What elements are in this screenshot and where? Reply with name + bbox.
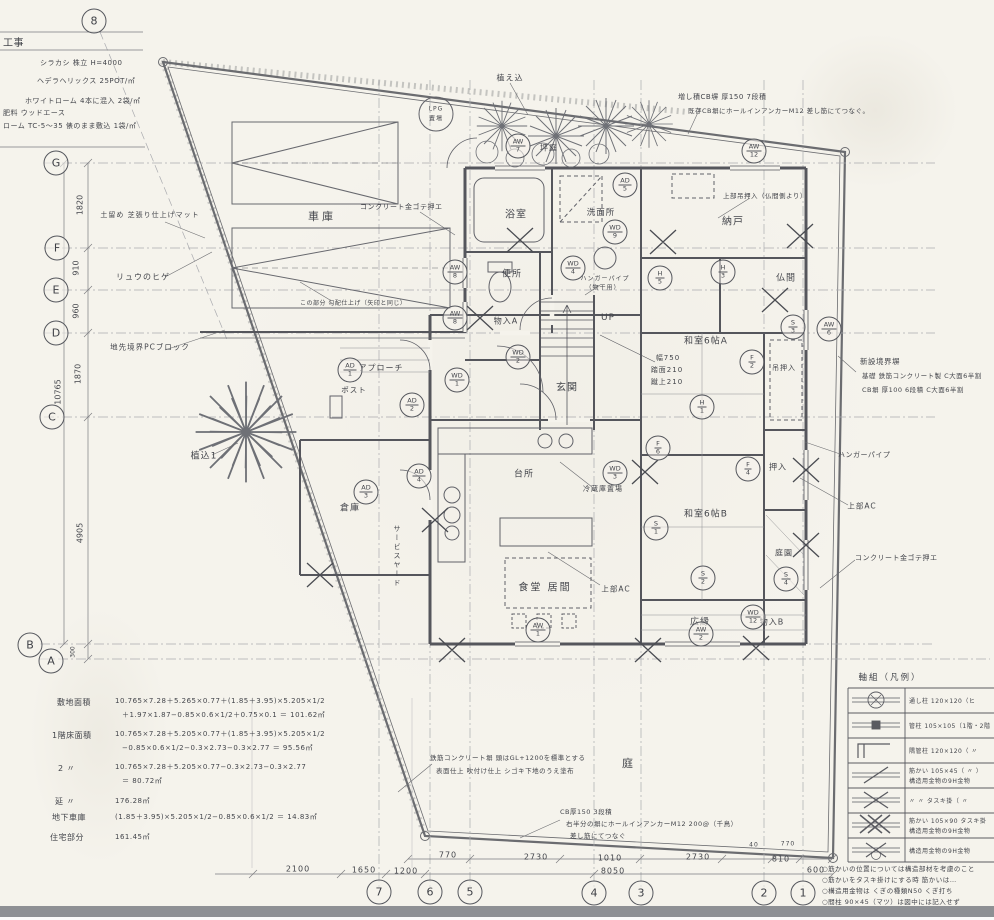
opening-symbol-wd2: WD2: [506, 345, 531, 370]
dim-left-1820: 1820: [76, 195, 85, 215]
dim-bottom-1200: 1200: [394, 867, 418, 876]
note-right-finish: コンクリート金ゴテ押エ: [855, 553, 938, 563]
opening-symbol-h5: H5: [648, 266, 673, 291]
room-label-dining: 食堂 居間: [518, 579, 571, 594]
note-add-wall-1: 増し積CB塀 厚150 7段積: [678, 92, 766, 102]
room-label-nando: 納戸: [722, 213, 744, 228]
left-notes-title: 工事: [3, 34, 24, 49]
calc-line: (1.85＋3.95)×5.205×1/2−0.85×0.6×1/2 ＝ 14.…: [115, 812, 317, 822]
legend-row-desc: 構造用金物の9H金物: [909, 826, 970, 835]
stair-note-rise: 蹴上210: [651, 377, 683, 387]
calc-label-house-area: 住宅部分: [50, 832, 84, 843]
legend-row-desc: 通し柱 120×120（ヒ: [909, 696, 975, 705]
room-label-washroom: 洗面所: [587, 206, 616, 218]
calc-line: 176.28㎡: [115, 796, 150, 806]
room-label-closet-a: 物入A: [494, 316, 518, 327]
calc-line: 10.765×7.28＋5.205×0.77−0.3×2.73−0.3×2.77: [115, 762, 306, 772]
opening-symbol-ad4: AD4: [407, 464, 432, 489]
calc-line: 10.765×7.28＋5.265×0.77＋(1.85＋3.95)×5.205…: [115, 696, 325, 706]
left-note-4: 肥料 ウッドエース: [3, 108, 65, 118]
calc-line: 10.765×7.28＋5.205×0.77＋(1.85＋3.95)×5.205…: [115, 729, 325, 739]
opening-symbol-aw8-a: AW8: [443, 260, 468, 285]
left-note-5: ローム TC-5〜35 俵のまま敷込 1袋/㎡: [3, 121, 153, 131]
grid-bubble-3: 3: [629, 881, 654, 906]
opening-symbol-aw7: AW7: [506, 134, 531, 159]
grid-bubble-B: B: [18, 633, 43, 658]
note-hanger-right: ハンガーパイプ: [838, 450, 890, 460]
dim-left-4905: 4905: [76, 523, 85, 543]
note-garage-slope: この部分 勾配仕上げ（矢印と同じ）: [300, 298, 406, 307]
opening-symbol-f6: F6: [646, 436, 671, 461]
legend-table: [848, 688, 994, 862]
grid-bubble-D: D: [44, 321, 69, 346]
stair-note-width: 幅750: [656, 353, 680, 363]
room-label-kitchen: 台所: [514, 467, 534, 480]
note-hanger-stair-1: ハンガーパイプ: [581, 274, 630, 283]
dim-bottom-8050: 8050: [601, 867, 625, 876]
room-label-niwa: 庭: [622, 755, 634, 771]
dim-bottom-40: 40: [749, 842, 759, 849]
dim-left-910: 910: [72, 260, 81, 275]
dim-left-300: 300: [70, 646, 77, 657]
grid-bubble-4: 4: [582, 881, 607, 906]
legend-row-desc: 筋かい 105×90 タスキ掛: [909, 816, 986, 825]
note-ac-2: 上部AC: [847, 501, 876, 512]
legend-row-desc: 筋かい 105×45（ 〃 ）: [909, 766, 982, 775]
room-label-tsuri-oshiire: 吊押入: [772, 363, 796, 373]
dim-bottom-1010: 1010: [598, 854, 622, 863]
floor-plan-sheet: 8 G F E D C B A 7 6 5 4 3 2 1 工事 シラカシ 株立…: [0, 0, 994, 920]
planting-label-uekomi1: 植込1: [191, 449, 218, 462]
stair-note-tread: 踏面210: [651, 365, 683, 375]
dim-left-1870: 1870: [74, 364, 83, 384]
opening-symbol-aw8-b: AW8: [443, 306, 468, 331]
room-label-teien: 庭園: [775, 548, 793, 559]
room-label-washitsu-b: 和室6帖B: [684, 507, 728, 520]
scan-edge-band: [0, 906, 994, 917]
grid-bubble-C: C: [40, 405, 65, 430]
post-label: ポスト: [341, 385, 367, 396]
opening-symbol-s3: S3: [781, 315, 806, 340]
opening-symbol-ad5: AD5: [613, 173, 638, 198]
dim-bottom-2730b: 2730: [686, 853, 710, 862]
calc-line: 161.45㎡: [115, 832, 150, 842]
note-cb150-1: CB厚150 3段積: [560, 806, 612, 816]
grid-bubble-F: F: [45, 236, 70, 261]
note-add-wall-2: 既存CB塀にホールインアンカーM12 差し筋にてつなぐ。: [688, 105, 870, 115]
dim-bottom-810: 810: [772, 855, 790, 864]
left-note-1: シラカシ 株立 H=4000: [40, 58, 122, 68]
opening-symbol-s2: S2: [691, 566, 716, 591]
note-rc-wall-1: 鉄筋コンクリート塀 頭はGL+1200を標準とする: [430, 752, 586, 762]
legend-row-desc: 構造用金物の9H金物: [909, 776, 970, 785]
left-note-3: ホワイトローム 4本に混入 2袋/㎡: [25, 96, 141, 106]
opening-symbol-aw2: AW2: [689, 622, 714, 647]
opening-symbol-aw6: AW6: [817, 317, 842, 342]
service-yard-label: サービスヤード: [392, 525, 402, 588]
grid-bubble-6: 6: [418, 880, 443, 905]
legend-note: ○間柱 90×45（マツ）は図中には記入せず: [822, 896, 960, 906]
dim-bottom-1650: 1650: [352, 866, 376, 875]
opening-symbol-s1: S1: [644, 516, 669, 541]
legend-title: 軸組（凡例）: [858, 671, 921, 683]
legend-row-desc: 〃 〃 タスキ掛（ 〃: [909, 796, 968, 805]
stair-up-label: UP: [601, 313, 615, 323]
planting-label-ryunohige: リュウのヒゲ: [116, 272, 170, 283]
grid-bubble-A: A: [39, 649, 64, 674]
opening-symbol-f2: F2: [740, 350, 765, 375]
opening-symbol-wd1: WD1: [445, 368, 470, 393]
calc-label-total-area: 延 〃: [55, 796, 75, 807]
grid-bubble-1: 1: [791, 881, 816, 906]
legend-note: ○構造用金物は くぎの種類N50 くぎ打ち: [822, 885, 953, 895]
legend-row-desc: 管柱 105×105（1階・2階: [909, 721, 990, 730]
dim-left-960: 960: [72, 303, 81, 318]
window-glyphs: [463, 166, 808, 646]
grid-bubble-2: 2: [752, 881, 777, 906]
opening-symbol-wd9: WD9: [603, 220, 628, 245]
opening-symbol-h1: H1: [690, 395, 715, 420]
opening-symbol-ad2: AD2: [400, 393, 425, 418]
room-label-tsuboniwa: 坪庭: [540, 143, 558, 154]
room-label-souko: 倉庫: [340, 501, 360, 514]
room-label-toilet: 便所: [502, 267, 522, 280]
planting-label-dodome: 土留め 芝張り仕上げマット: [100, 210, 199, 220]
opening-symbol-ad3: AD3: [354, 480, 379, 505]
calc-label-2f-area: 2 〃: [58, 763, 75, 774]
approach-label: アプローチ: [359, 363, 404, 374]
dim-bottom-770: 770: [439, 851, 457, 860]
opening-symbol-aw12: AW12: [742, 139, 767, 164]
legend-note: ○筋かいの位置については構造部材を考慮のこと: [822, 863, 975, 873]
grid-bubble-E: E: [44, 278, 69, 303]
room-label-washitsu-a: 和室6帖A: [684, 334, 728, 347]
grid-bubble-5: 5: [458, 880, 483, 905]
dim-bottom-2100: 2100: [286, 865, 310, 874]
lpg-label-2: 置場: [429, 114, 443, 123]
note-hanger-stair-2: （物干用）: [585, 283, 620, 292]
note-garage-finish: コンクリート金ゴテ押エ: [360, 202, 443, 212]
legend-note: ○筋かいをタスキ掛けにする時 筋かいは…: [822, 874, 957, 884]
note-new-wall-3: CB塀 厚100 6段積 C大面6半割: [862, 384, 964, 394]
calc-line: ＋1.97×1.87−0.85×0.6×1/2＋0.75×0.1 ＝ 101.6…: [122, 710, 325, 720]
opening-symbol-f4: F4: [736, 457, 761, 482]
calc-label-1f-area: 1階床面積: [52, 730, 92, 741]
opening-symbol-aw1: AW1: [526, 618, 551, 643]
note-ac-1: 上部AC: [601, 584, 630, 595]
note-tsuri: 上部吊押入（仏間側より）: [723, 190, 807, 200]
left-note-2: ヘデラヘリックス 25POT/㎡: [37, 76, 135, 86]
opening-symbol-ad1: AD1: [338, 358, 363, 383]
grid-bubble-top: 8: [82, 9, 107, 34]
legend-row-desc: 構造用金物の9H金物: [909, 846, 970, 855]
note-new-wall-1: 新設境界塀: [860, 356, 900, 367]
planting-label-uekomi: 植え込: [497, 73, 524, 84]
dim-bottom-770s: 770: [781, 841, 795, 848]
legend-row-desc: 隅管柱 120×120（ 〃: [909, 746, 978, 755]
dim-left-overall: 10765: [54, 379, 63, 404]
room-label-garage: 車庫: [308, 208, 336, 224]
calc-line: −0.85×0.6×1/2−0.3×2.73−0.3×2.77 ＝ 95.56㎡: [122, 743, 313, 753]
note-rc-wall-2: 表面仕上 吹付け仕上 シゴキ下地のうえ塗布: [436, 765, 574, 775]
note-refrigerator: 冷蔵庫置場: [583, 484, 623, 494]
opening-symbol-wd4: WD4: [561, 256, 586, 281]
planting-label-pc-block: 地先境界PCブロック: [110, 342, 190, 353]
note-new-wall-2: 基礎 鉄筋コンクリート製 C大面6半割: [862, 370, 982, 380]
calc-label-site-area: 敷地面積: [57, 697, 91, 708]
note-cb150-2: 右半分の塀にホールインアンカーM12 200@（千鳥）: [566, 818, 738, 828]
calc-label-garage-area: 地下車庫: [52, 812, 86, 823]
room-label-butsuma: 仏間: [776, 271, 796, 284]
opening-symbol-wd3: WD3: [603, 461, 628, 486]
opening-symbol-s4: S4: [774, 567, 799, 592]
note-cb150-3: 差し筋にてつなぐ: [570, 830, 626, 840]
opening-symbol-h3: H3: [711, 260, 736, 285]
dim-bottom-2730a: 2730: [524, 853, 548, 862]
opening-symbol-wd12: WD12: [741, 605, 766, 630]
grid-bubble-G: G: [44, 151, 69, 176]
room-label-oshiire: 押入: [769, 462, 787, 473]
room-label-entrance: 玄関: [556, 379, 578, 394]
grid-bubble-7: 7: [367, 880, 392, 905]
walls-inner: [200, 168, 806, 644]
room-label-bath: 浴室: [505, 206, 527, 221]
lpg-label-1: LPG: [429, 106, 444, 113]
stairs: [541, 302, 655, 425]
calc-line: ＝ 80.72㎡: [122, 776, 162, 786]
